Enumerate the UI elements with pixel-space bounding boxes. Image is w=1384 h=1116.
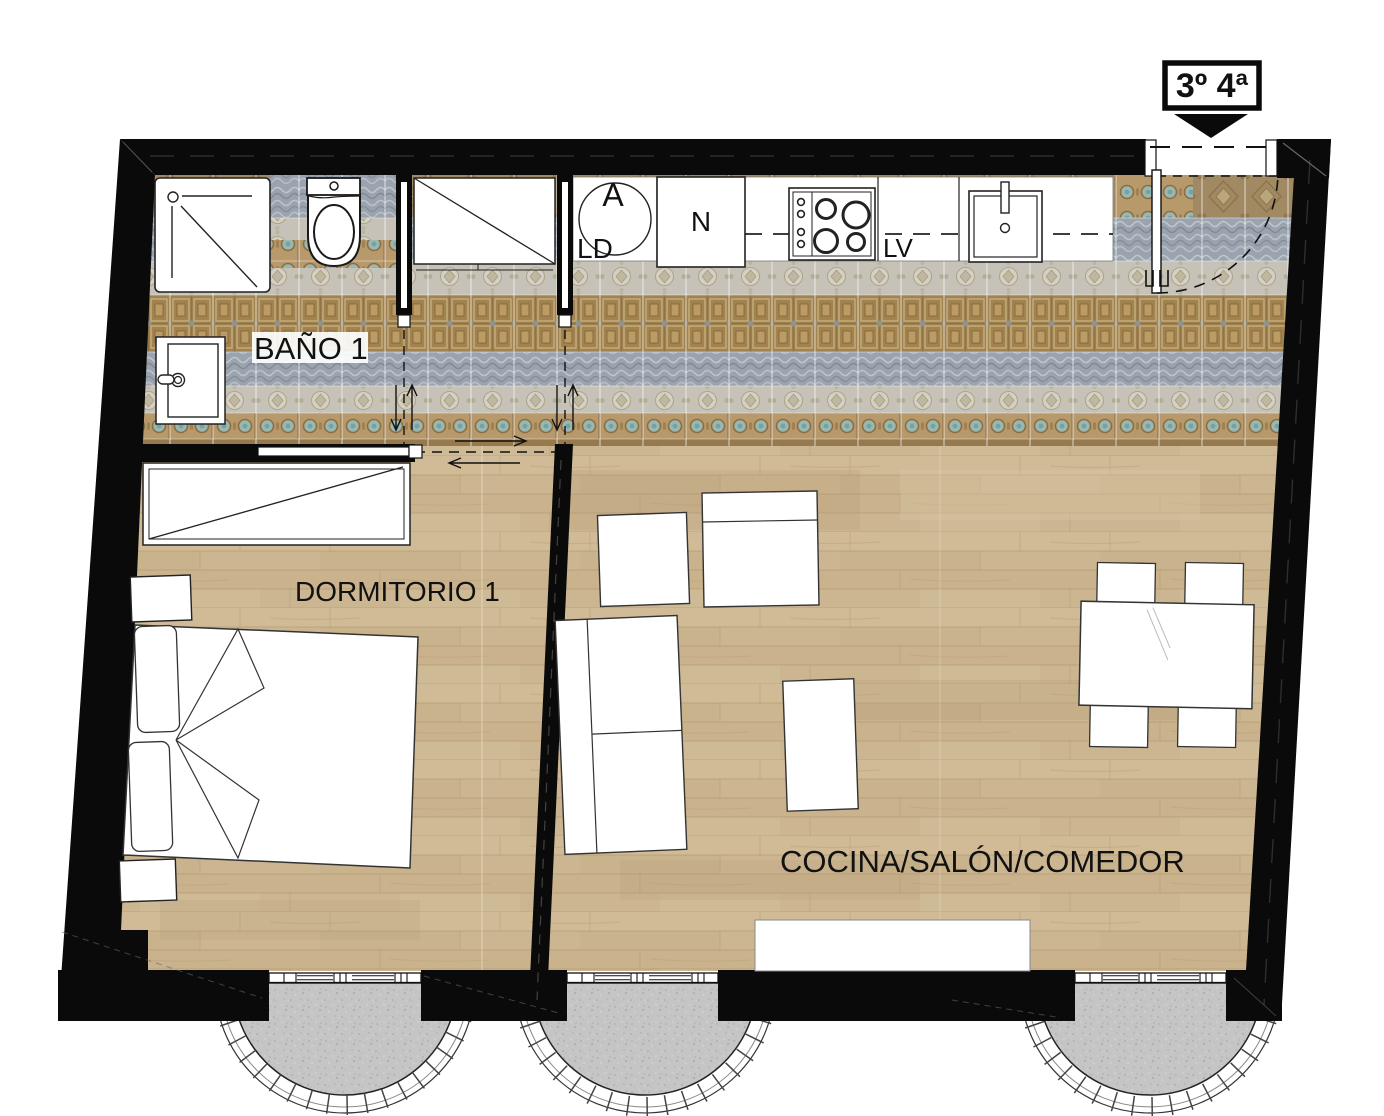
svg-text:A: A <box>602 177 624 213</box>
svg-text:COCINA/SALÓN/COMEDOR: COCINA/SALÓN/COMEDOR <box>780 844 1185 879</box>
svg-text:LV: LV <box>883 233 914 263</box>
svg-text:DORMITORIO 1: DORMITORIO 1 <box>295 576 500 607</box>
svg-text:3º 4ª: 3º 4ª <box>1176 67 1249 105</box>
svg-text:N: N <box>691 206 711 237</box>
svg-text:LD: LD <box>577 233 613 264</box>
svg-text:BAÑO 1: BAÑO 1 <box>254 331 368 366</box>
